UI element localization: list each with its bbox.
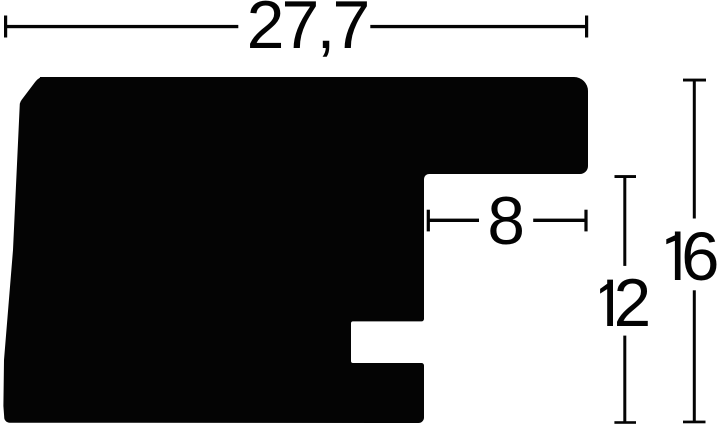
svg-text:2: 2 [614, 266, 652, 341]
svg-text:8: 8 [487, 184, 525, 259]
svg-text:27,7: 27,7 [247, 0, 368, 63]
svg-text:6: 6 [681, 218, 719, 295]
